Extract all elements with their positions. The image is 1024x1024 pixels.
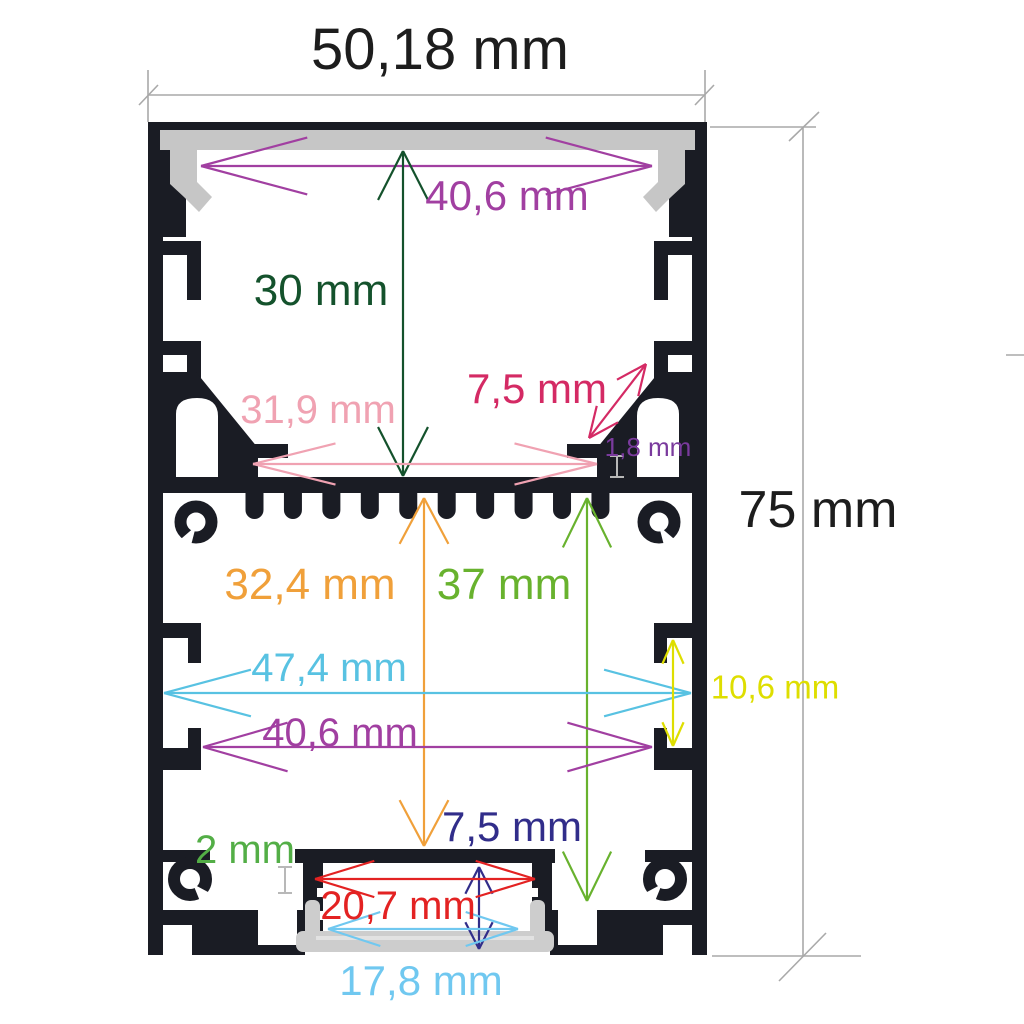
- dim-label-upper-inner-width: 31,9 mm: [240, 390, 396, 430]
- dim-label-side-slot-height: 10,6 mm: [711, 671, 839, 704]
- dim-label-diffuser-width: 17,8 mm: [339, 960, 502, 1002]
- dim-label-led-channel-height: 7,5 mm: [442, 806, 582, 848]
- dim-label-channel-slot-width: 40,6 mm: [262, 713, 418, 753]
- dim-label-overall-height: 75 mm: [739, 484, 898, 536]
- dim-label-gusset-length: 7,5 mm: [467, 368, 607, 410]
- dim-label-foot-gap: 1,8 mm: [605, 434, 692, 460]
- dim-label-upper-chamber-height: 30 mm: [254, 269, 388, 313]
- dim-label-overall-width: 50,18 mm: [311, 21, 569, 79]
- profile-dimension-diagram: 50,18 mm 75 mm 40,6 mm 30 mm 7,5 mm 31,9…: [0, 0, 1024, 1024]
- top-diffuser-cover: [160, 129, 695, 150]
- dim-label-lower-total-height: 37 mm: [437, 563, 571, 607]
- middle-shelf: [163, 477, 692, 493]
- dim-label-top-inner-width: 40,6 mm: [425, 175, 588, 217]
- dim-label-web-thickness: 2 mm: [195, 830, 295, 870]
- dim-label-lower-chamber-height: 32,4 mm: [224, 563, 395, 607]
- dim-label-lower-inner-width: 47,4 mm: [251, 648, 407, 688]
- dimension-arrow-lower-inner-width: [164, 670, 691, 717]
- dimension-arrow-lower-chamber-height: [400, 498, 449, 846]
- dim-label-led-channel-width: 20,7 mm: [320, 886, 476, 926]
